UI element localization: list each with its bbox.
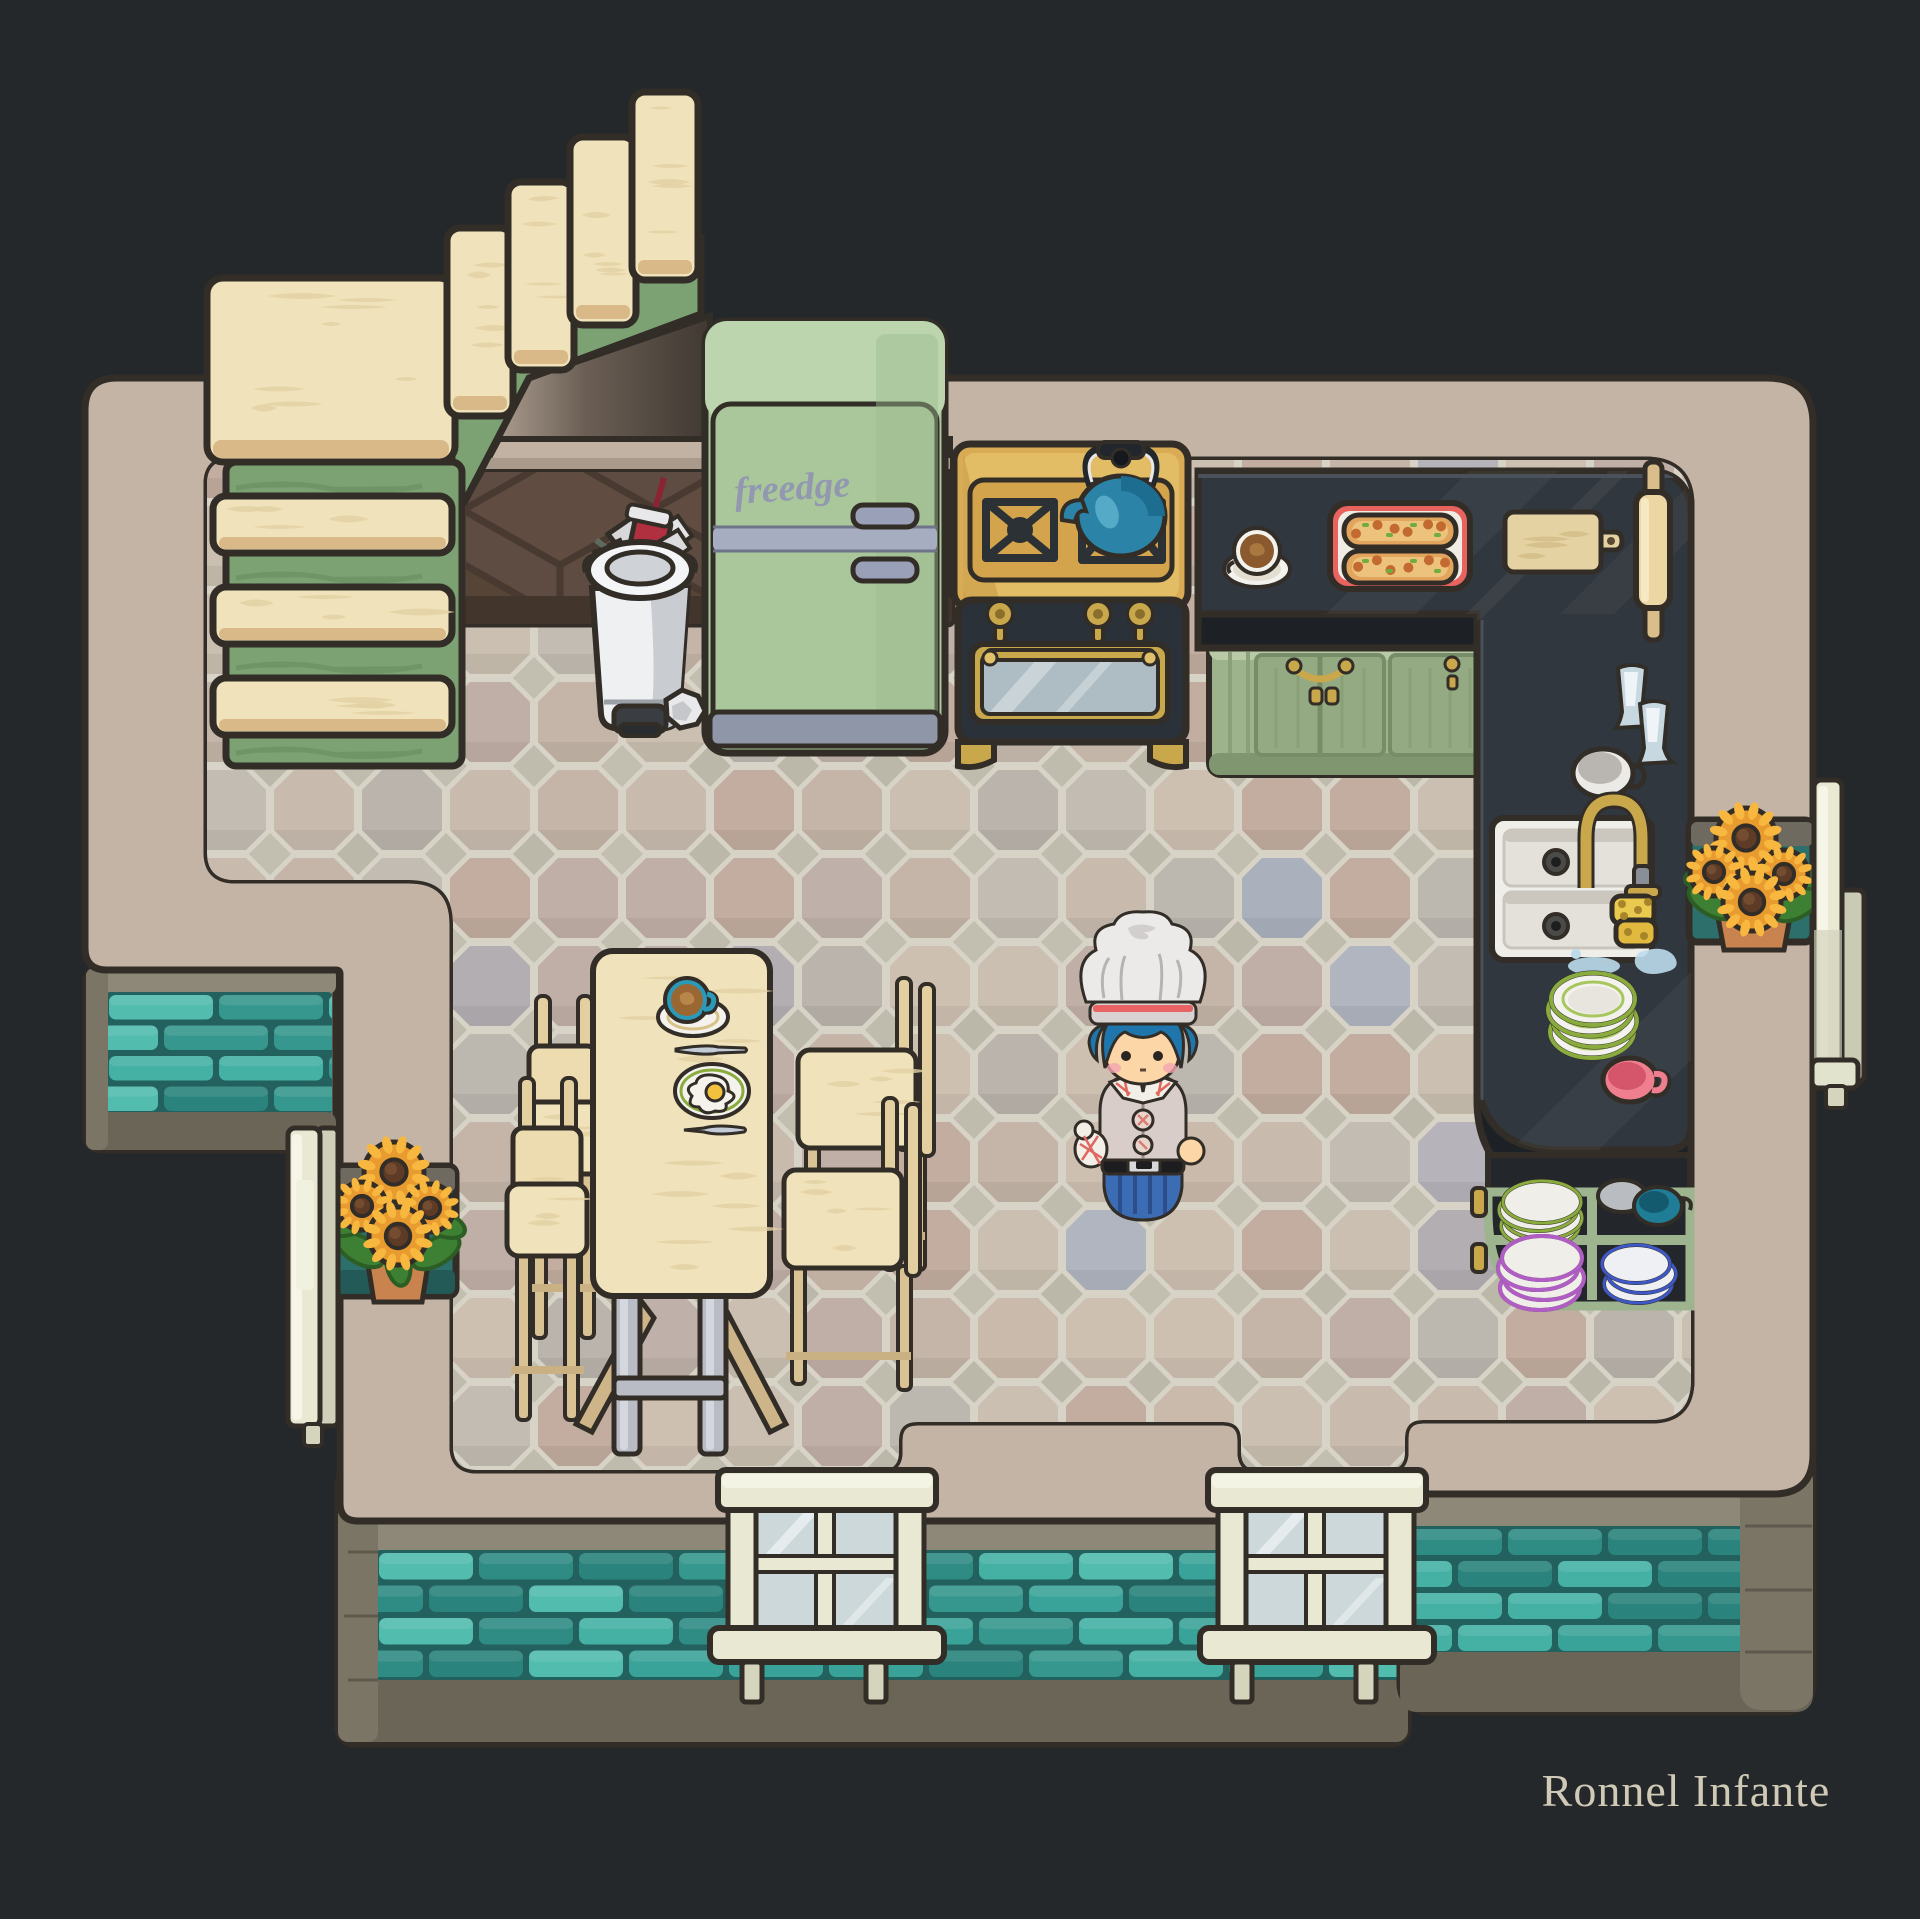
svg-text:Ronnel Infante: Ronnel Infante — [1542, 1765, 1831, 1816]
svg-text:freedge: freedge — [733, 463, 852, 513]
